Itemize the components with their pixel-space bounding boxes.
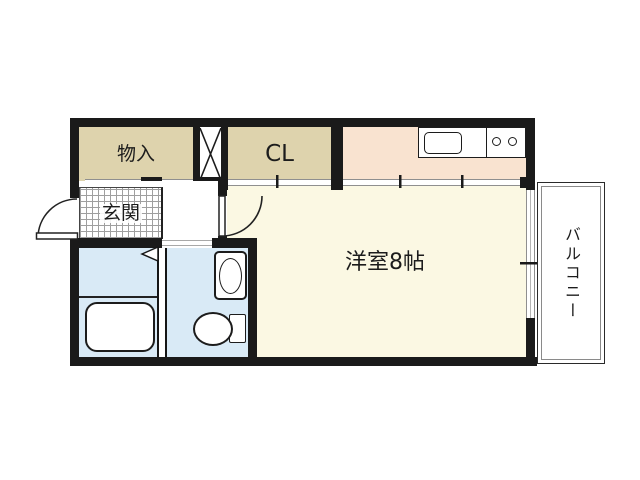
balcony-window bbox=[526, 190, 535, 318]
western-room-label: 洋室8帖 bbox=[260, 250, 510, 276]
bath-toilet-divider bbox=[157, 248, 167, 357]
washbasin bbox=[214, 251, 247, 300]
stove-burner-left bbox=[492, 137, 501, 146]
kitchen-sink bbox=[424, 132, 462, 154]
floor-plan: バルコニー 物入 CL 玄関 洋室8帖 bbox=[0, 0, 640, 480]
bath-top-wall-left bbox=[70, 238, 162, 248]
balcony-label: バルコニー bbox=[538, 183, 604, 363]
entrance-label: 玄関 bbox=[79, 187, 163, 239]
closet-kitchen-wall bbox=[331, 127, 343, 190]
toilet-door bbox=[162, 240, 212, 246]
toilet-right-wall bbox=[248, 238, 257, 357]
balcony-label-text: バルコニー bbox=[563, 226, 579, 321]
bathroom-step-line bbox=[79, 296, 162, 298]
kitchen-sliding-door bbox=[343, 179, 520, 186]
outer-wall-right-upper bbox=[526, 118, 535, 190]
shaft-wall-left bbox=[193, 127, 200, 181]
storage-label: 物入 bbox=[79, 127, 193, 181]
counter-divider bbox=[486, 127, 487, 158]
toilet-bowl bbox=[193, 312, 233, 346]
stove-burner-right bbox=[508, 137, 517, 146]
western-room-label-text: 洋室8帖 bbox=[345, 252, 425, 274]
shaft-wall-right bbox=[221, 127, 228, 181]
balcony-window-mid-rail bbox=[530, 190, 531, 318]
pipe-shaft bbox=[200, 127, 221, 181]
hall-room-door-gap bbox=[218, 196, 227, 236]
bathtub bbox=[85, 302, 155, 352]
outer-wall-top bbox=[70, 118, 535, 127]
closet-label: CL bbox=[228, 127, 331, 181]
entrance-label-text: 玄関 bbox=[100, 204, 142, 223]
washbasin-bowl bbox=[219, 258, 242, 294]
outer-wall-bottom bbox=[70, 357, 537, 366]
entrance-door-arc bbox=[38, 199, 77, 238]
balcony-box: バルコニー bbox=[537, 182, 605, 364]
outer-wall-left-lower bbox=[70, 238, 79, 366]
outer-wall-right-lower bbox=[526, 318, 535, 366]
storage-label-text: 物入 bbox=[117, 145, 155, 164]
outer-wall-left-upper bbox=[70, 118, 79, 198]
closet-label-text: CL bbox=[265, 143, 294, 166]
